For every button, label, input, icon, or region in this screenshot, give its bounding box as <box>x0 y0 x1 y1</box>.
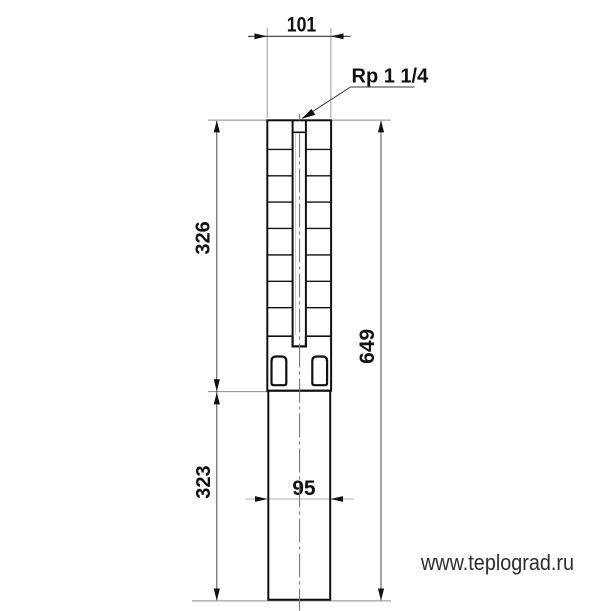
svg-text:95: 95 <box>292 477 316 500</box>
svg-text:Rp 1 1/4: Rp 1 1/4 <box>352 65 430 87</box>
svg-text:www.teplograd.ru: www.teplograd.ru <box>420 550 574 575</box>
svg-text:323: 323 <box>193 465 215 498</box>
svg-text:326: 326 <box>192 221 214 254</box>
svg-text:101: 101 <box>287 13 317 36</box>
svg-text:649: 649 <box>356 329 379 364</box>
